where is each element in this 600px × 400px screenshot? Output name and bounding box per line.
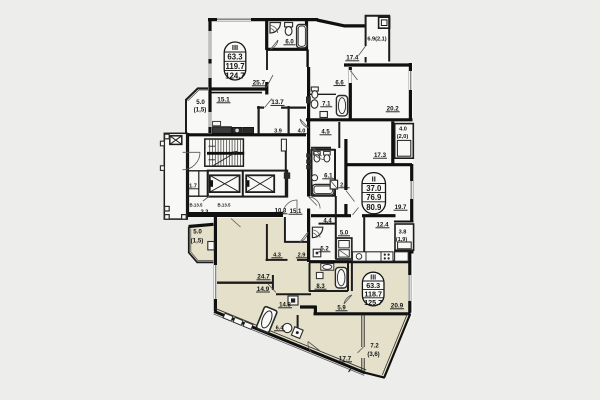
svg-text:II: II (372, 175, 376, 184)
svg-text:124.7: 124.7 (225, 71, 245, 80)
svg-text:(1,5): (1,5) (191, 238, 204, 245)
svg-text:В.13.5: В.13.5 (218, 202, 231, 207)
svg-text:37.0: 37.0 (366, 184, 382, 193)
svg-text:III: III (232, 43, 238, 52)
svg-text:119.7: 119.7 (225, 62, 244, 71)
svg-text:(3,6): (3,6) (367, 352, 379, 358)
svg-text:(2,0): (2,0) (397, 134, 409, 140)
svg-text:3.8: 3.8 (399, 230, 407, 236)
svg-text:В.13.5: В.13.5 (190, 202, 203, 207)
svg-text:4.0: 4.0 (399, 127, 407, 133)
svg-text:63.3: 63.3 (227, 53, 243, 62)
svg-text:125.7: 125.7 (364, 298, 382, 307)
svg-text:5.0: 5.0 (196, 99, 205, 106)
svg-text:5.0: 5.0 (193, 229, 202, 236)
svg-text:(1,9): (1,9) (396, 237, 408, 243)
svg-text:7.2: 7.2 (370, 344, 379, 350)
svg-text:6.9(2,1): 6.9(2,1) (367, 37, 386, 43)
svg-text:(1,5): (1,5) (194, 107, 207, 114)
svg-text:76.9: 76.9 (366, 193, 382, 202)
svg-text:80.9: 80.9 (366, 203, 382, 212)
